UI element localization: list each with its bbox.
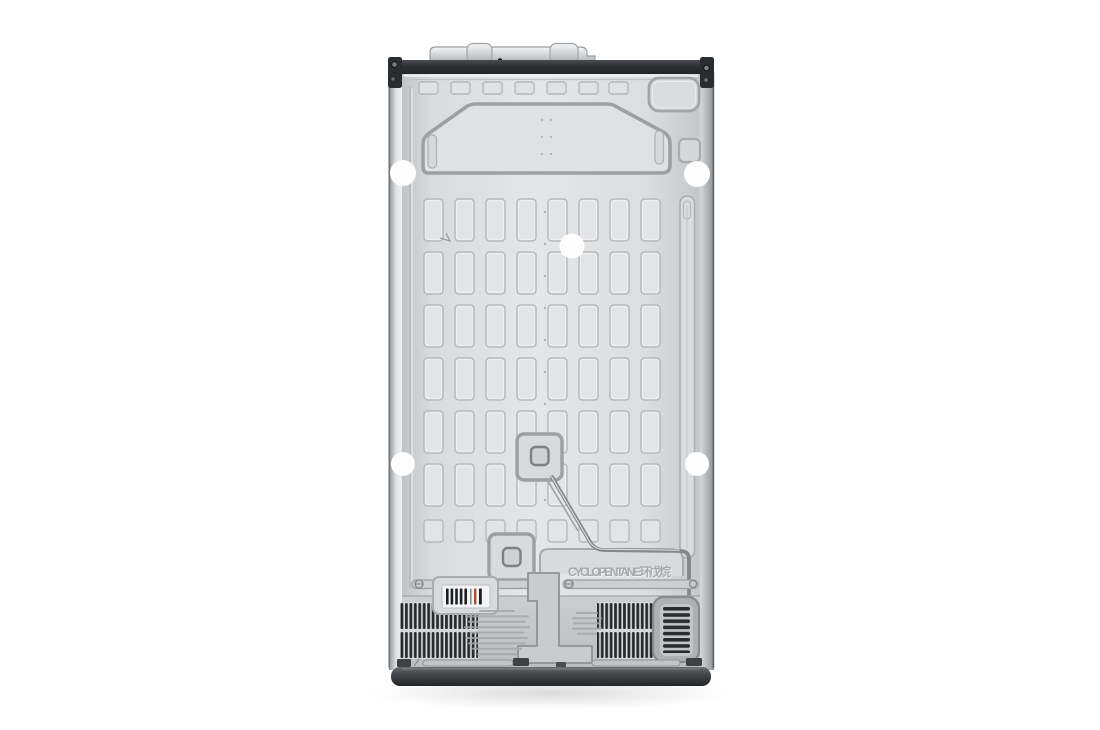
base-bar-highlight [402, 668, 700, 670]
top-right-plate [649, 78, 699, 111]
stamped-slot-grid-short [418, 516, 666, 546]
base-slot-left [423, 660, 513, 666]
product-photo: CYCLOPENTANE 环戊烷 CYCLOPENTANE 环戊烷 [0, 0, 1100, 730]
base-clip [397, 659, 411, 667]
top-plateau [423, 104, 670, 173]
plateau-slot-left [428, 135, 437, 168]
mounting-hole [684, 161, 710, 187]
cyclopentane-emboss-text: CYCLOPENTANE 环戊烷 [568, 564, 671, 579]
screw [565, 580, 573, 588]
side-wall-left [389, 70, 403, 670]
plateau-slot-right [655, 131, 664, 164]
side-edge-line-left [389, 72, 390, 668]
mounting-hole [390, 160, 416, 186]
mounting-hole [685, 452, 709, 476]
hinge-cover-left [467, 44, 492, 63]
mounting-rail-right [563, 580, 698, 589]
mounting-hole [391, 452, 415, 476]
stamped-square-row [419, 82, 628, 94]
base-clip [686, 658, 702, 666]
right-small-plate [679, 139, 700, 162]
screw [690, 581, 697, 588]
corner-bracket-left [388, 57, 402, 88]
panel-top-highlight [404, 75, 698, 77]
side-vent [653, 597, 699, 662]
barcode-accent-bar [474, 589, 476, 605]
right-channel [680, 196, 695, 558]
base-bar [391, 667, 711, 686]
base-slot-right [592, 660, 680, 666]
corner-bracket-right [700, 57, 714, 88]
top-band [388, 60, 713, 75]
base-clip [513, 658, 529, 666]
side-wall-right [699, 70, 714, 670]
side-edge-line-right [713, 72, 715, 668]
rating-label [433, 577, 498, 614]
access-panel-upper [517, 434, 562, 480]
embossed-warning-text-left [464, 610, 530, 655]
screw [415, 580, 423, 588]
mounting-hole [560, 234, 585, 259]
fridge-rear-illustration: CYCLOPENTANE 环戊烷 CYCLOPENTANE 环戊烷 [0, 0, 1100, 730]
hinge-cover-right [550, 44, 578, 63]
